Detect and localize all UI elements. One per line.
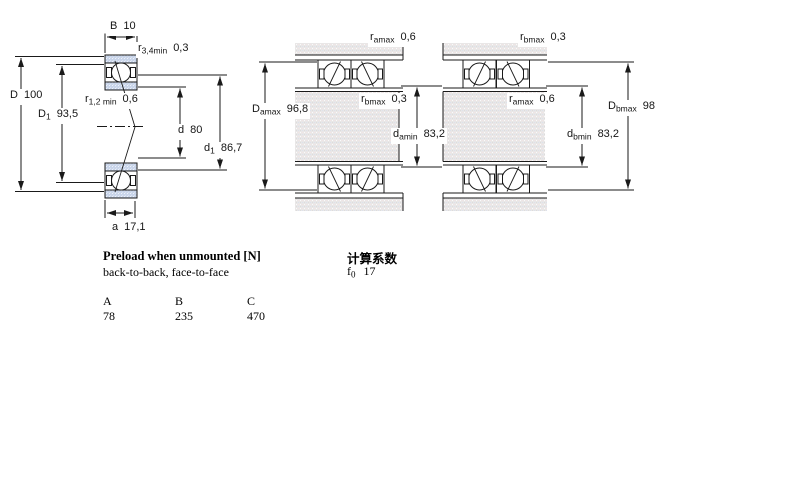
dim-value: 100	[24, 89, 42, 101]
dim-value: 98	[643, 100, 655, 112]
dim-value: 0,3	[550, 31, 565, 43]
bearing-pair-bottom	[463, 165, 530, 193]
preload-table-header-A: A	[103, 294, 112, 309]
ball	[112, 63, 131, 82]
dim-label-B: B10	[108, 20, 138, 36]
outer-ring	[105, 55, 137, 63]
dim-subscript: amin	[399, 132, 417, 142]
dim-value: 0,6	[123, 93, 138, 105]
preload-table-header-B: B	[175, 294, 183, 309]
dim-subscript: amax	[513, 97, 534, 107]
dim-label-damin: damin83,2	[391, 128, 447, 144]
dim-label-ramax-right: ramax0,6	[507, 93, 557, 109]
face-to-face-arrangement-drawing	[443, 43, 634, 211]
dim-label-Dbmax: Dbmax98	[606, 100, 657, 116]
bearing-technical-drawing-page: B10 r3,4min0,3 D100 D193,5 r1,2 min0,6 d…	[0, 0, 800, 500]
dim-label-D1: D193,5	[36, 108, 80, 124]
housing-block-bottom	[295, 198, 403, 211]
dim-label-r34min: r3,4min0,3	[136, 42, 190, 58]
dim-value: 83,2	[424, 128, 445, 140]
dim-label-d1: d186,7	[202, 142, 244, 158]
dim-label-a: a17,1	[110, 221, 148, 237]
dim-subscript: 1,2 min	[89, 97, 117, 107]
preload-table-value-B: 235	[175, 309, 193, 324]
preload-subtitle: back-to-back, face-to-face	[103, 265, 229, 280]
dim-label-d: d80	[176, 124, 204, 140]
dim-symbol: D	[10, 89, 18, 101]
extension-lines	[546, 62, 634, 190]
preload-table-value-A: 78	[103, 309, 115, 324]
dim-label-r12min: r1,2 min0,6	[83, 93, 140, 109]
dim-value: 80	[190, 124, 202, 136]
back-to-back-arrangement-drawing	[259, 43, 442, 211]
dim-subscript: amax	[260, 107, 281, 117]
calculation-factor-f0: f017	[347, 264, 376, 280]
dim-subscript: bmin	[573, 132, 591, 142]
dim-subscript: bmax	[524, 35, 545, 45]
dim-label-rbmax-middle: rbmax0,3	[359, 93, 409, 109]
dim-subscript: 1	[210, 146, 215, 156]
housing-block-bottom	[443, 198, 547, 211]
dim-label-Damax: Damax96,8	[250, 103, 310, 119]
bearing-pair-top	[463, 60, 530, 88]
dimension-lines	[582, 64, 628, 189]
dim-subscript: amax	[374, 35, 395, 45]
dim-symbol: d	[178, 124, 184, 136]
bearing-bottom-section	[105, 163, 137, 198]
preload-table-header-C: C	[247, 294, 255, 309]
bearing-pair-bottom	[318, 165, 384, 193]
factor-subscript: 0	[351, 270, 356, 280]
dim-value: 0,6	[400, 31, 415, 43]
preload-table-value-C: 470	[247, 309, 265, 324]
dim-value: 0,3	[391, 93, 406, 105]
dim-value: 83,2	[598, 128, 619, 140]
dim-value: 17,1	[124, 221, 145, 233]
dim-label-D: D100	[8, 89, 44, 105]
bearing-pair-top	[318, 60, 384, 88]
dim-subscript: bmax	[365, 97, 386, 107]
dim-value: 0,3	[173, 42, 188, 54]
dim-symbol: B	[110, 20, 117, 32]
dim-subscript: 3,4min	[142, 46, 168, 56]
dim-value: 96,8	[287, 103, 308, 115]
inner-ring	[105, 82, 137, 90]
dim-subscript: 1	[46, 112, 51, 122]
dim-symbol: a	[112, 221, 118, 233]
dim-label-dbmin: dbmin83,2	[565, 128, 621, 144]
factor-value: 17	[364, 264, 376, 278]
dim-symbol: D	[608, 100, 616, 112]
dim-label-ramax-middle: ramax0,6	[368, 31, 418, 47]
dim-value: 0,6	[539, 93, 554, 105]
dim-value: 93,5	[57, 108, 78, 120]
dim-symbol: D	[252, 103, 260, 115]
preload-title: Preload when unmounted [N]	[103, 249, 261, 264]
outer-ring	[105, 190, 137, 198]
dim-symbol: D	[38, 108, 46, 120]
dim-label-rbmax-right: rbmax0,3	[518, 31, 568, 47]
bearing-top-section	[105, 55, 137, 90]
dim-value: 10	[123, 20, 135, 32]
dim-value: 86,7	[221, 142, 242, 154]
inner-ring	[105, 163, 137, 171]
dim-subscript: bmax	[616, 104, 637, 114]
